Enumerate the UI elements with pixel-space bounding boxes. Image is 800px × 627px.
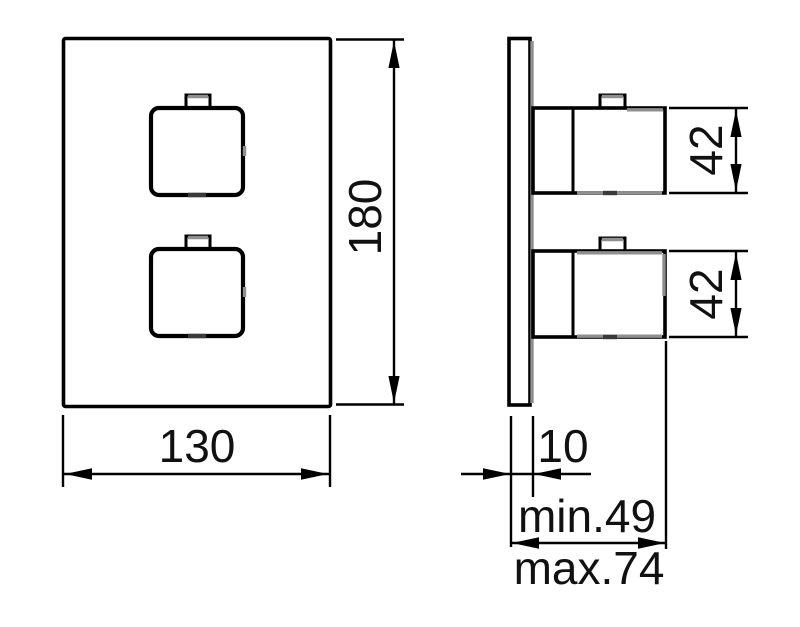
- front-handle-bottom: [151, 236, 245, 336]
- side-view: [509, 39, 665, 406]
- arrowhead-up: [730, 110, 741, 137]
- front-view: [64, 39, 331, 407]
- dimension-height: 180: [336, 40, 404, 405]
- arrowhead-left: [65, 468, 92, 480]
- dim-label-depth-min: min.49: [518, 490, 656, 542]
- dim-label-depth-max: max.74: [514, 542, 665, 594]
- arrowhead-up: [730, 253, 741, 280]
- side-handle-top-body: [533, 108, 665, 193]
- dim-label-handle-bottom: 42: [680, 268, 732, 319]
- front-handle-top-body: [151, 108, 243, 195]
- side-handle-bottom: [533, 238, 665, 337]
- arrowhead-right: [483, 468, 510, 480]
- arrowhead-down: [388, 376, 399, 403]
- arrowhead-down: [730, 308, 741, 335]
- front-handle-top: [151, 95, 245, 195]
- dimension-width: 130: [63, 415, 330, 487]
- side-handle-top: [533, 95, 665, 193]
- arrowhead-right: [301, 468, 328, 480]
- arrowhead-down: [730, 164, 741, 191]
- technical-drawing: 180 130: [0, 0, 800, 627]
- dim-label-handle-top: 42: [680, 124, 732, 175]
- front-handle-bottom-body: [151, 249, 243, 336]
- dim-label-plate-thickness: 10: [537, 420, 588, 472]
- arrowhead-up: [388, 41, 399, 68]
- dimension-handle-top: 42: [669, 108, 748, 193]
- dim-label-height: 180: [339, 179, 391, 256]
- side-handle-bottom-body: [533, 251, 665, 337]
- dimension-handle-bottom: 42: [669, 251, 748, 337]
- side-wall-plate: [509, 39, 530, 406]
- dim-label-width: 130: [159, 420, 236, 472]
